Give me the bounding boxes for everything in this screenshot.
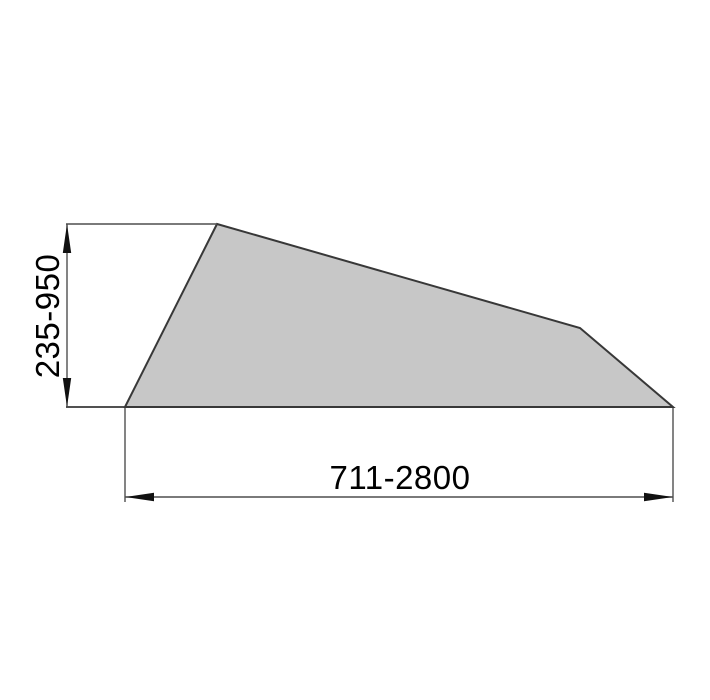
- dimension-drawing: 235-950 711-2800: [0, 0, 710, 700]
- shape-profile: [125, 224, 673, 407]
- height-arrow-top-icon: [63, 224, 71, 253]
- width-arrow-left-icon: [125, 493, 154, 501]
- height-dimension-label: 235-950: [29, 254, 66, 379]
- width-dimension-label: 711-2800: [329, 459, 470, 496]
- technical-drawing-canvas: 235-950 711-2800: [0, 0, 710, 700]
- width-arrow-right-icon: [644, 493, 673, 501]
- height-arrow-bottom-icon: [63, 378, 71, 407]
